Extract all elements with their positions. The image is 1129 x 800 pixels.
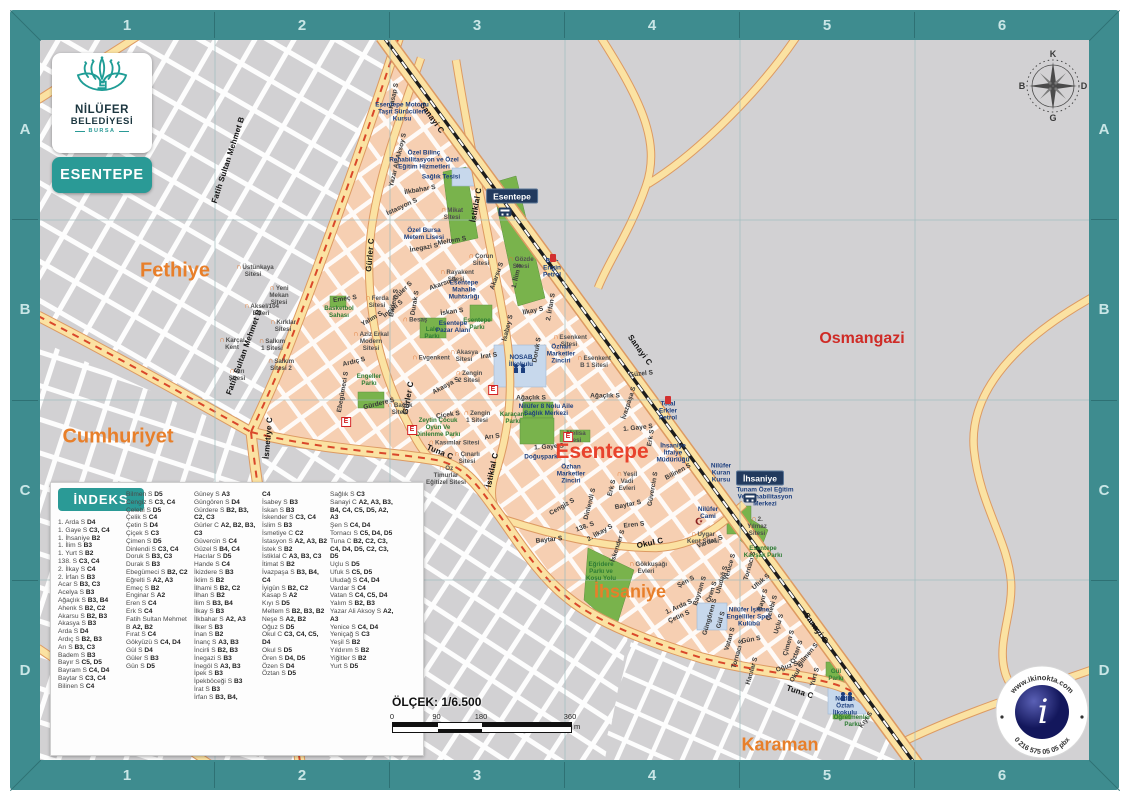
grid-label-1: 1	[40, 12, 214, 38]
site-label: ∩Uygar Kent Sitesi	[686, 530, 720, 546]
map-canvas: Sanayi CSanayi CSanayi CFatih Sultan Meh…	[40, 40, 1089, 760]
site-arch-icon: ∩	[617, 469, 622, 478]
street-index-panel: İNDEKS 1. Arda S D41. Gaye S C3, C41. İh…	[50, 482, 424, 756]
scale-label: ÖLÇEK:	[392, 695, 438, 709]
railway-station-label: Esentepe	[486, 189, 538, 204]
index-entry: Sağlık S C3	[330, 491, 396, 499]
road-label: Fatih Sultan Mehmet B	[210, 116, 247, 205]
district-label: Cumhuriyet	[62, 426, 173, 449]
site-arch-icon: ∩	[751, 514, 756, 523]
grid-label-D: D	[12, 580, 38, 760]
scale-ratio: 1/6.500	[441, 695, 481, 709]
street-label: Gün S	[741, 635, 761, 645]
site-arch-icon: ∩	[508, 254, 513, 263]
street-label: Vatan S	[723, 627, 736, 652]
index-entry: İpek S B3	[194, 670, 260, 678]
railway-station-label: İhsaniye	[736, 471, 784, 486]
index-entry: Yeniçağ S C3	[330, 631, 396, 639]
index-entry: Yurt S D5	[330, 663, 396, 671]
street-label: Güzel S	[629, 369, 654, 378]
index-entry: Gökyüzü S C4, D4	[126, 639, 192, 647]
index-entry: Okul C C3, C4, C5, D4	[262, 631, 328, 647]
index-column: C4İsabey S B3İskan S B3İskender S C3, C4…	[262, 491, 328, 678]
site-arch-icon: ∩	[270, 317, 275, 326]
index-entry: İnanç S A3, B3	[194, 639, 260, 647]
street-label: Dinlendi S	[583, 488, 598, 521]
street-label: İnegazi S	[409, 242, 438, 254]
street-label: Emeç S	[333, 294, 358, 304]
grid-label-B: B	[1091, 219, 1117, 399]
index-entry: İlkay S B3	[194, 608, 260, 616]
site-label: ∩Kırklar Sitesi	[268, 318, 298, 334]
site-arch-icon: ∩	[219, 335, 224, 344]
index-entry: Cengiz S C3, C4	[126, 499, 192, 507]
index-entry: Bayır S C5, D5	[58, 659, 124, 667]
index-column: 1. Arda S D41. Gaye S C3, C41. İhsaniye …	[58, 519, 124, 691]
street-label: Baytar S	[614, 499, 642, 511]
road-label: İsmetiye C	[262, 417, 275, 460]
index-entry: Hande S C4	[194, 561, 260, 569]
index-entry: Dinlendi S C3, C4	[126, 546, 192, 554]
pharmacy-icon: E	[563, 432, 573, 442]
index-entry: Çiçek S C3	[126, 530, 192, 538]
street-label: 2. İrfan S	[545, 293, 557, 322]
index-entry: İsmetiye C C2	[262, 530, 328, 538]
index-entry: Arı S B3, C3	[58, 644, 124, 652]
index-entry: İlim S B3, B4	[194, 600, 260, 608]
landmark-label: Özel Bursa Metem Lisesi	[401, 227, 447, 241]
pharmacy-icon: E	[407, 425, 417, 435]
index-entry: Ufuk S C5, D5	[330, 569, 396, 577]
street-label: Yalım S	[360, 310, 384, 328]
grid-ruler-bottom: 123456	[40, 762, 1089, 788]
grid-label-4: 4	[564, 762, 739, 788]
scale-bar-graphic: m	[392, 722, 572, 733]
grid-label-4: 4	[564, 12, 739, 38]
index-entry: İklim S B2	[194, 577, 260, 585]
index-entry: İvazpaşa S B3, B4, C4	[262, 569, 328, 585]
index-entry: İyigün S B2, C2	[262, 585, 328, 593]
index-entry: Gül S D4	[126, 647, 192, 655]
grid-label-A: A	[12, 40, 38, 219]
grid-label-C: C	[12, 400, 38, 580]
index-entry: Ağaçlık S B3, B4	[58, 597, 124, 605]
grid-label-B: B	[12, 219, 38, 399]
map-page: 123456 123456 ABCD ABCD	[0, 0, 1129, 800]
index-entry: İnan S B2	[194, 631, 260, 639]
street-label: İlkbahar S	[404, 184, 436, 196]
road-label: Sanayi C	[802, 611, 830, 645]
site-label: ∩Esenkent B 1 Sitesi	[574, 354, 614, 370]
index-entry: Fatih Sultan Mehmet B A2, B2	[126, 616, 192, 632]
park-label: Basketbol Sahası	[321, 306, 357, 320]
index-entry: Enginar S A2	[126, 592, 192, 600]
index-entry: Öztan S D5	[262, 670, 328, 678]
index-entry: Eren S C4	[126, 600, 192, 608]
index-column: Güney S A3Güngören S D4Gürdere S B2, B3,…	[194, 491, 260, 702]
index-entry: Bayram S C4, D4	[58, 667, 124, 675]
site-arch-icon: ∩	[439, 463, 444, 472]
site-label: ∩Rayakent Sitesi	[440, 268, 472, 284]
site-label: ∩Besaş	[403, 315, 428, 324]
index-entry: Gürler C A2, B2, B3, C3	[194, 522, 260, 538]
index-entry: Arda S D4	[58, 628, 124, 636]
index-entry: 2. İrfan S B3	[58, 574, 124, 582]
site-arch-icon: ∩	[244, 301, 249, 310]
street-label: Baytar S	[535, 535, 562, 545]
index-entry: 2. İlkay S C4	[58, 566, 124, 574]
site-arch-icon: ∩	[691, 529, 696, 538]
watermark-letter: i	[1038, 692, 1049, 732]
index-entry: Ebegümeci S B2, C2	[126, 569, 192, 577]
street-label: Ebegümeci S	[336, 371, 350, 413]
index-entry: 1. İlim S B3	[58, 542, 124, 550]
index-entry: İstasyon S A2, A3, B2	[262, 538, 328, 546]
publisher-watermark: i www.ikinokta.com 0 216 575 05 05 pbx	[992, 662, 1089, 760]
site-arch-icon: ∩	[403, 315, 408, 324]
fuel-station-icon	[665, 396, 671, 404]
landmark-label: NOSAB İlkokulu	[504, 354, 538, 368]
index-entry: Bilmen S D5	[126, 491, 192, 499]
index-entry: Güvercin S C4	[194, 538, 260, 546]
index-entry: Şen S C4, D4	[330, 522, 396, 530]
site-label: ∩Aksel/104 Evleri	[244, 302, 278, 318]
park-label: Gül Parkı	[825, 669, 847, 683]
street-label: Güvercin S	[647, 471, 660, 507]
road-label: İstiklal C	[484, 452, 500, 488]
index-entry: 1. Gaye S C3, C4	[58, 527, 124, 535]
site-arch-icon: ∩	[629, 559, 634, 568]
grid-label-2: 2	[214, 12, 389, 38]
street-label: İvazpaşa S	[620, 386, 637, 420]
park-label: Eğridere Parkı ve Koşu Yolu	[581, 562, 621, 582]
index-entry: Yazar Ali Aksoy S A2, A3	[330, 608, 396, 624]
landmark-label: Özhan Marketler Zinciri	[551, 463, 591, 484]
index-entry: Fırat S C4	[126, 631, 192, 639]
site-arch-icon: ∩	[577, 353, 582, 362]
grid-ruler-top: 123456	[40, 12, 1089, 38]
grid-label-6: 6	[914, 12, 1089, 38]
index-entry: İpekböceği S B3	[194, 678, 260, 686]
street-label: Ağaçlık S	[590, 393, 620, 400]
index-entry: İlhan S B2	[194, 592, 260, 600]
index-entry: İkizdere S B3	[194, 569, 260, 577]
index-entry: Çetin S D4	[126, 522, 192, 530]
site-arch-icon: ∩	[236, 262, 241, 271]
site-label: ∩Salkım Sitesi 2	[266, 357, 296, 373]
index-entry: Vardar S C4	[330, 585, 396, 593]
railway-station-icon	[744, 494, 757, 503]
site-arch-icon: ∩	[268, 356, 273, 365]
landmark-label: İhsaniye İtfaiye Müdürlüğü	[651, 442, 695, 463]
site-arch-icon: ∩	[429, 438, 434, 447]
site-label: ∩Zengin 1 Sitesi	[462, 409, 492, 425]
site-label: ∩Karçal Kent	[219, 336, 245, 352]
landmark-label: Sağlık Tesisi	[422, 173, 460, 180]
index-entry: 138. S C3, C4	[58, 558, 124, 566]
index-entry: Güzel S B4, C4	[194, 546, 260, 554]
index-entry: Uludağ S C4, D4	[330, 577, 396, 585]
site-arch-icon: ∩	[454, 449, 459, 458]
street-label: Durak S	[409, 290, 420, 316]
landmark-label: Nilüfer 8 Nolu Aile Sağlık Merkezi	[510, 403, 582, 417]
district-label: İhsaniye	[594, 582, 666, 603]
index-entry: Çimen S D5	[126, 538, 192, 546]
street-label: İskan S	[440, 307, 464, 317]
grid-label-5: 5	[739, 762, 914, 788]
street-label: Ardıç S	[342, 356, 366, 368]
district-label: Osmangazi	[819, 330, 904, 348]
index-entry: Sanayi C A2, A3, B3, B4, C4, C5, D5, A2,…	[330, 499, 396, 522]
site-label: ∩Kasımlar Sitesi	[429, 439, 480, 448]
index-entry: Gün S D5	[126, 663, 192, 671]
site-label: ∩Üstünkaya Sitesi	[236, 263, 270, 279]
site-arch-icon: ∩	[365, 293, 370, 302]
grid-label-C: C	[1091, 400, 1117, 580]
site-arch-icon: ∩	[553, 332, 558, 341]
site-arch-icon: ∩	[469, 251, 474, 260]
site-arch-icon: ∩	[388, 400, 393, 409]
site-label: ∩Çorun Sitesi	[461, 252, 501, 268]
index-entry: Ardıç S B2, B3	[58, 636, 124, 644]
site-label: ∩Mikat Sitesi	[432, 206, 472, 222]
street-label: 138. S	[575, 520, 595, 533]
road-label: Sanayi C	[626, 333, 654, 367]
site-arch-icon: ∩	[412, 353, 417, 362]
street-label: Güngören S	[701, 598, 718, 636]
index-entry: Badem S B3	[58, 652, 124, 660]
compass-east: D	[1081, 81, 1088, 91]
site-arch-icon: ∩	[441, 205, 446, 214]
index-entry: Durak S B3	[126, 561, 192, 569]
street-label: Bilinen S	[664, 462, 692, 481]
index-entry: İtimat S B2	[262, 561, 328, 569]
index-entry: İslim S B3	[262, 522, 328, 530]
grid-label-D: D	[1091, 580, 1117, 760]
index-entry: İstiklal C A3, B3, C3	[262, 553, 328, 561]
site-arch-icon: ∩	[229, 366, 234, 375]
park-label: Zeytin Çocuk Oyun Ve Dinlenme Parkı	[414, 418, 462, 438]
road-label: Gürler C	[364, 238, 376, 272]
site-label: ∩Yeşil Vadi Evleri	[612, 470, 642, 492]
site-label: ∩Gözde Sitesi	[507, 255, 535, 271]
compass-south: G	[1049, 113, 1056, 123]
site-arch-icon: ∩	[440, 267, 445, 276]
street-label: Ağaçlık S	[516, 395, 546, 402]
site-arch-icon: ∩	[259, 336, 264, 345]
index-entry: Yalım S B2, B3	[330, 600, 396, 608]
road-label: Okul C	[636, 536, 664, 550]
street-label: İlkay S	[522, 305, 544, 316]
site-label: ∩Esenkent Sitesi	[553, 333, 585, 349]
index-entry: Yeşil S B2	[330, 639, 396, 647]
scale-ticks: 090180360	[392, 712, 570, 722]
landmark-label: Nedim Öztan İlkokulu	[827, 695, 863, 716]
street-label: İskender S	[610, 529, 627, 563]
index-entry: Akarsu S B2, B3	[58, 613, 124, 621]
index-entry: Ahenk S B2, C2	[58, 605, 124, 613]
site-label: ∩Evgenkent	[412, 353, 450, 362]
street-label: Cengiz S	[548, 497, 576, 517]
site-label: ∩Zengin 2 Sitesi	[454, 369, 484, 385]
index-entry: Kıyı S D5	[262, 600, 328, 608]
scale-tick: 360	[564, 712, 577, 721]
site-label: ∩Bağlık Sitesi	[387, 401, 413, 417]
district-label: Fethiye	[140, 260, 210, 283]
grid-label-6: 6	[914, 762, 1089, 788]
scale-tick: 90	[432, 712, 440, 721]
street-label: Hacılar S	[745, 656, 760, 685]
index-entry: Doruk S B3, C3	[126, 553, 192, 561]
index-entry: İnegazi S B3	[194, 655, 260, 663]
index-entry: 1. Arda S D4	[58, 519, 124, 527]
site-arch-icon: ∩	[450, 347, 455, 356]
index-entry: Yenice S C4, D4	[330, 624, 396, 632]
fuel-station-icon	[550, 254, 556, 262]
grid-label-1: 1	[40, 762, 214, 788]
site-arch-icon: ∩	[269, 283, 274, 292]
street-label: Yurt S	[809, 667, 821, 687]
landmark-label: Esentepe Pazar Alanı	[435, 320, 471, 334]
index-entry: Yıldırım S B2	[330, 647, 396, 655]
site-label: ∩2. Yılmaz Sitesi	[742, 515, 772, 537]
street-label: Eren S	[623, 520, 645, 529]
index-entry: Erk S C4	[126, 608, 192, 616]
site-arch-icon: ∩	[353, 329, 358, 338]
site-label: ∩Gökkuşağı Evleri	[629, 560, 663, 576]
site-arch-icon: ∩	[464, 408, 469, 417]
municipality-logo-card: NİLÜFER BELEDİYESİ BURSA	[52, 53, 152, 153]
landmark-label: Nilüfer İşitme Engelliler Spor Kulübü	[723, 606, 775, 627]
neighborhood-badge: ESENTEPE	[52, 157, 152, 193]
grid-label-2: 2	[214, 762, 389, 788]
landmark-label: Doğuşpark	[524, 454, 557, 461]
index-entry: İlkbahar S A2, A3	[194, 616, 260, 624]
grid-label-A: A	[1091, 40, 1117, 219]
site-arch-icon: ∩	[456, 368, 461, 377]
index-column: Sağlık S C3Sanayi C A2, A3, B3, B4, C4, …	[330, 491, 396, 670]
compass-rose: K D G B	[1015, 48, 1089, 124]
index-entry: Emeç S B2	[126, 585, 192, 593]
park-label: Öğretmenler Parkı	[831, 715, 873, 729]
park-label: Engeller Parkı	[354, 374, 384, 388]
mosque-icon: ☪	[695, 517, 703, 528]
compass-north: K	[1050, 49, 1057, 59]
nilufer-lotus-logo-icon	[71, 53, 133, 103]
landmark-label: Nilüfer Kuran Kursu	[704, 462, 738, 483]
index-entry: Yiğitler S B2	[330, 655, 396, 663]
index-entry: Çelebi S D5	[126, 507, 192, 515]
index-entry: Neşe S A2, B2	[262, 616, 328, 624]
index-entry: İncirli S B2, B3	[194, 647, 260, 655]
index-entry: İsabey S B3	[262, 499, 328, 507]
street-label: İstasyon S	[386, 197, 419, 217]
index-entry: Bilinen S C4	[58, 683, 124, 691]
index-entry: Eğrelti S A2, A3	[126, 577, 192, 585]
index-entry: Hacılar S D5	[194, 553, 260, 561]
index-entry: Tornacı S C5, D4, D5	[330, 530, 396, 538]
landmark-label: Özel Bilinç Rehabilitasyon ve Özel Eğiti…	[388, 149, 460, 170]
street-label: İsabey S	[501, 314, 514, 342]
scale-bar: ÖLÇEK: 1/6.500 090180360 m	[392, 695, 572, 733]
municipality-name-line1: NİLÜFER	[75, 104, 129, 116]
grid-ruler-left: ABCD	[12, 40, 38, 760]
pharmacy-icon: E	[488, 385, 498, 395]
index-entry: Güler S B3	[126, 655, 192, 663]
index-entry: Akasya S B3	[58, 620, 124, 628]
grid-label-3: 3	[389, 12, 564, 38]
site-label: ∩Akasya Sitesi	[450, 348, 478, 364]
grid-label-3: 3	[389, 762, 564, 788]
district-label: Karaman	[741, 735, 818, 756]
grid-ruler-right: ABCD	[1091, 40, 1117, 760]
compass-west: B	[1019, 81, 1026, 91]
index-entry: Güngören S D4	[194, 499, 260, 507]
scale-tick: 180	[475, 712, 488, 721]
site-label: ∩Ferda Sitesi	[364, 294, 390, 310]
index-entry: İrfan S B3, B4,	[194, 694, 260, 702]
street-label: Arı S	[484, 432, 500, 441]
landmark-label: Esentepe Motorlu Taşıt Sürücüleri Kursu	[372, 101, 432, 122]
index-entry: Uçlu S D5	[330, 561, 396, 569]
index-entry: Çelik S C4	[126, 514, 192, 522]
index-entry: Baytar S C3, C4	[58, 675, 124, 683]
index-entry: Kasap S A2	[262, 592, 328, 600]
index-entry: Ören S D4, D5	[262, 655, 328, 663]
index-entry: Tuna C B2, C2, C3, C4, D4, D5, C2, C3, D…	[330, 538, 396, 561]
site-label: ∩Öz Timurlar Eğitizel Sitesi	[426, 464, 466, 486]
index-entry: Oğuz S D5	[262, 624, 328, 632]
railway-station-icon	[499, 208, 512, 217]
scale-unit: m	[574, 722, 580, 731]
index-column: Bilmen S D5Cengiz S C3, C4Çelebi S D5Çel…	[126, 491, 192, 670]
site-label: ∩Salkım 1 Sitesi	[257, 337, 287, 353]
grid-label-5: 5	[739, 12, 914, 38]
park-label: Esentepe Kavşak Parkı	[743, 546, 783, 560]
site-label: ∩Aziz Erkal Modern Sitesi	[351, 330, 391, 352]
pharmacy-icon: E	[341, 417, 351, 427]
index-entry: Vatan S C4, C5, D4	[330, 592, 396, 600]
index-entry: Acelya S B3	[58, 589, 124, 597]
index-entry: Acar S B3, C3	[58, 581, 124, 589]
index-entry: C4	[262, 491, 328, 499]
index-entry: Okul S D5	[262, 647, 328, 655]
city-name: BURSA	[88, 128, 115, 134]
road-label: Tuna C	[785, 683, 814, 700]
site-label: ∩Arı Sitesi	[225, 367, 249, 383]
street-label: İrat S	[480, 351, 497, 360]
scale-tick: 0	[390, 712, 394, 721]
index-entry: 1. Yurt S B2	[58, 550, 124, 558]
index-entry: Güney S A3	[194, 491, 260, 499]
street-label: Şen S	[676, 575, 695, 590]
index-entry: Meltem S B2, B3, B2	[262, 608, 328, 616]
municipality-name-line2: BELEDİYESİ	[71, 116, 134, 127]
index-entry: Gürdere S B2, B3, C2, C3	[194, 507, 260, 523]
index-entry: İrat S B3	[194, 686, 260, 694]
neighborhood-name-label: Esentepe	[555, 440, 648, 464]
